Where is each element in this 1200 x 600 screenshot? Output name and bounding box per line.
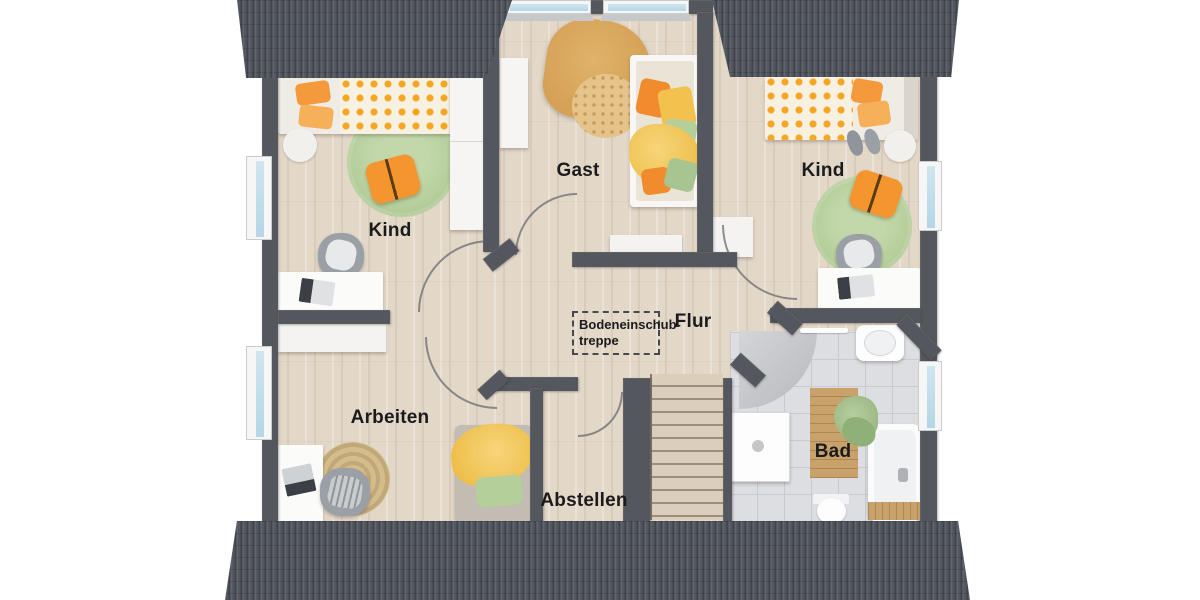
window-gast-1 — [505, 0, 591, 14]
window-kindleft-glass — [256, 161, 264, 237]
bed-kind-right-blanket — [765, 76, 853, 140]
room-label-arbeiten: Arbeiten — [351, 407, 430, 429]
wall-exterior-left — [262, 77, 278, 523]
bed-kind-left-blanket — [340, 78, 460, 134]
wall-kindleft-arbeiten — [278, 310, 390, 324]
room-label-gast: Gast — [556, 160, 599, 182]
window-gast-2-sill — [600, 14, 692, 21]
wardrobe-kind-left — [450, 57, 484, 230]
roof-bottom — [225, 521, 970, 600]
wall-gast-kindright — [697, 12, 713, 257]
wall-gast-bottom — [572, 252, 737, 267]
wall-stairwell-right — [723, 378, 732, 522]
roof-top-right — [700, 0, 959, 77]
toilet-bowl — [817, 498, 846, 524]
flower-rug-right — [884, 130, 916, 162]
flower-rug-left — [283, 128, 317, 162]
window-gast-2-glass — [608, 4, 686, 11]
attic-hatch-line1: Bodeneinschub- — [579, 317, 655, 333]
attic-hatch-annotation: Bodeneinschub- treppe — [572, 311, 660, 355]
window-bad-glass — [927, 366, 935, 428]
room-label-bad: Bad — [815, 441, 852, 463]
room-label-kind-right: Kind — [801, 160, 844, 182]
pillow-orange-2 — [298, 104, 334, 129]
bathtub-caddy-wood — [868, 502, 922, 520]
chair-arbeiten-cushion — [326, 474, 364, 510]
window-bad — [918, 361, 942, 431]
window-gast-1-sill — [502, 14, 594, 21]
staircase — [650, 374, 723, 520]
roof-top-left — [237, 0, 512, 78]
laptop-kind-left — [298, 278, 335, 306]
window-arbeiten — [246, 346, 272, 440]
attic-hatch-line2: treppe — [579, 333, 655, 349]
daybed-pillow-green — [475, 474, 523, 508]
room-label-kind-left: Kind — [368, 220, 411, 242]
window-gast-1-glass — [510, 4, 588, 11]
wall-exterior-right — [920, 75, 937, 523]
sink-basin — [864, 330, 896, 356]
bathtub-faucet — [898, 468, 908, 482]
window-kindright-glass — [927, 166, 935, 228]
sideboard-arbeiten — [278, 324, 386, 352]
pillow-orange-1 — [295, 80, 332, 107]
room-label-abstellen: Abstellen — [540, 490, 627, 512]
window-gast-2 — [603, 0, 689, 14]
window-arbeiten-glass — [256, 351, 264, 437]
towel-rail — [800, 328, 848, 333]
window-kindright — [918, 161, 942, 231]
pillow-right-orange-2 — [856, 100, 891, 128]
shower-drain — [752, 440, 764, 452]
floor-plan: Kind Gast Kind Flur Arbeiten Abstellen B… — [0, 0, 1200, 600]
laptop-kind-right — [837, 274, 875, 300]
wardrobe-gast — [500, 58, 528, 148]
window-kindleft — [246, 156, 272, 240]
